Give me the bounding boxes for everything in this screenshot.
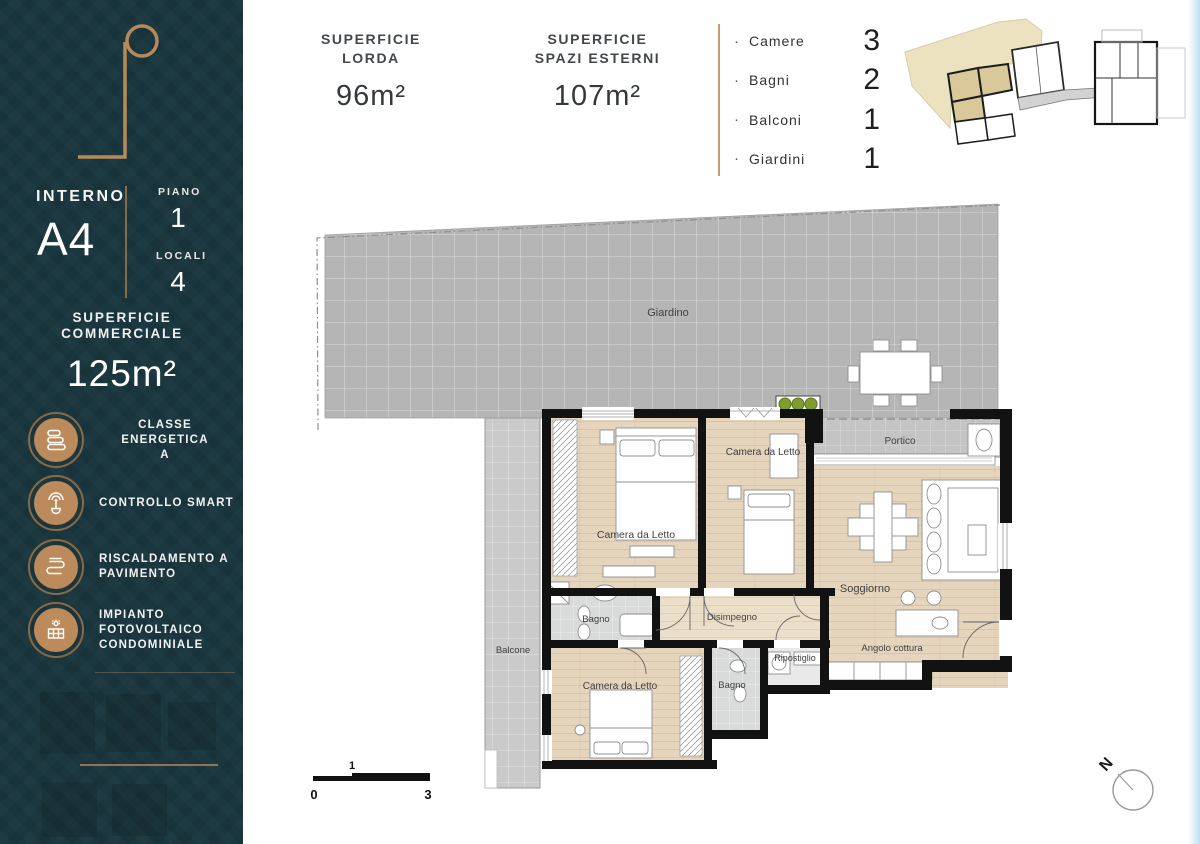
scale-one: 1: [349, 760, 355, 772]
label-balcone: Balcone: [496, 645, 530, 656]
brand-logo-icon: [60, 12, 170, 172]
locali-value: 4: [156, 266, 200, 298]
superficie-lorda-block: SUPERFICIE LORDA 96m²: [311, 30, 431, 113]
scale-three: 3: [424, 787, 431, 802]
superficie-commerciale: SUPERFICIE COMMERCIALE 125m²: [16, 310, 228, 395]
piano-label: PIANO: [158, 186, 201, 198]
feature-label: RISCALDAMENTO APAVIMENTO: [99, 552, 249, 582]
label-camera3: Camera da Letto: [583, 681, 658, 692]
stat-giardini: ·Giardini 1: [734, 142, 880, 176]
label-camera1: Camera da Letto: [597, 529, 675, 541]
bullet: ·: [734, 111, 740, 128]
ghost-sketch: [40, 692, 95, 754]
ghost-divider: [95, 672, 235, 673]
smart-control-icon: [28, 475, 84, 531]
north-label: N: [1096, 755, 1116, 775]
divider: [125, 186, 127, 298]
label-soggiorno: Soggiorno: [840, 583, 890, 595]
spazi-esterni-line2: SPAZI ESTERNI: [530, 49, 665, 68]
sidebar: INTERNO A4 PIANO 1 LOCALI 4 SUPERFICIE C…: [0, 0, 243, 844]
photovoltaic-icon: [28, 602, 84, 658]
feature-smart-control: CONTROLLO SMART: [28, 475, 249, 531]
feature-label: CONTROLLO SMART: [99, 496, 249, 511]
superficie-line1: SUPERFICIE: [16, 310, 228, 326]
bullet: ·: [734, 33, 740, 50]
floor-plan: Giardino Portico Soggiorno Angolo cottur…: [300, 190, 1200, 840]
label-angolo-cottura: Angolo cottura: [861, 643, 923, 654]
feature-floor-heating: RISCALDAMENTO APAVIMENTO: [28, 539, 249, 595]
key-plan: [890, 0, 1200, 190]
superficie-lorda-value: 96m²: [311, 80, 431, 113]
energy-class-icon: [28, 412, 84, 468]
spazi-esterni-value: 107m²: [530, 80, 665, 113]
label-disimpegno: Disimpegno: [707, 612, 757, 623]
ghost-sketch: [112, 784, 167, 836]
label-portico: Portico: [884, 436, 916, 447]
ghost-sketch: [42, 782, 97, 837]
scale-zero: 0: [310, 787, 317, 802]
feature-label: IMPIANTOFOTOVOLTAICOCONDOMINIALE: [99, 608, 249, 653]
key-plan-right-block: [1095, 30, 1185, 124]
scale-bar: 1 0 3: [310, 760, 431, 802]
piano-value: 1: [156, 202, 200, 234]
feature-label: CLASSE ENERGETICAA: [99, 418, 231, 463]
superficie-value: 125m²: [16, 353, 228, 395]
interno-value: A4: [37, 212, 95, 266]
superficie-lorda-line2: LORDA: [311, 49, 431, 68]
feature-photovoltaic: IMPIANTOFOTOVOLTAICOCONDOMINIALE: [28, 602, 249, 658]
stat-camere: ·Camere 3: [734, 24, 880, 58]
floorplan-brochure-page: INTERNO A4 PIANO 1 LOCALI 4 SUPERFICIE C…: [0, 0, 1200, 844]
label-camera2: Camera da Letto: [726, 447, 801, 458]
interno-label: INTERNO: [36, 188, 126, 206]
ghost-sketch: [168, 702, 216, 750]
apartment-stats: ·Camere 3 ·Bagni 2 ·Balconi 1 ·Giardini …: [718, 24, 880, 176]
north-compass-icon: N: [1096, 755, 1153, 810]
bullet: ·: [734, 150, 740, 167]
spazi-esterni-block: SUPERFICIE SPAZI ESTERNI 107m²: [530, 30, 665, 113]
superficie-lorda-line1: SUPERFICIE: [311, 30, 431, 49]
page-edge-tint: [1188, 0, 1200, 844]
label-bagno1: Bagno: [582, 614, 609, 625]
label-ripostiglio: Ripostiglio: [774, 653, 816, 663]
ghost-sketch: [106, 694, 161, 752]
room-balcone: [485, 418, 540, 788]
key-plan-highlight-unit: [948, 64, 1015, 144]
label-bagno2: Bagno: [718, 680, 745, 691]
spazi-esterni-line1: SUPERFICIE: [530, 30, 665, 49]
feature-energy-class: CLASSE ENERGETICAA: [28, 412, 231, 468]
label-giardino: Giardino: [647, 307, 689, 319]
floor-heating-icon: [28, 539, 84, 595]
stat-balconi: ·Balconi 1: [734, 103, 880, 137]
key-plan-unit: [1012, 42, 1064, 98]
ghost-divider: [80, 764, 218, 766]
bullet: ·: [734, 72, 740, 89]
locali-label: LOCALI: [156, 250, 207, 262]
stat-bagni: ·Bagni 2: [734, 63, 880, 97]
superficie-line2: COMMERCIALE: [16, 326, 228, 342]
